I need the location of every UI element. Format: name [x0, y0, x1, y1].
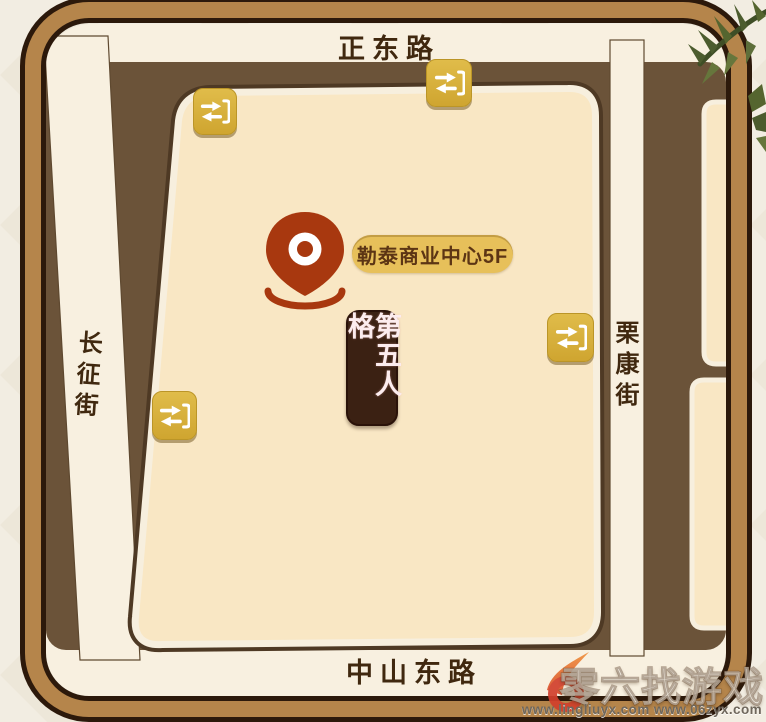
transfer-arrows-icon — [555, 324, 587, 351]
metro-station-icon — [193, 88, 237, 135]
road-label-zhengdong: 正东路 — [338, 27, 440, 66]
road-label-zhongshan-east: 中山东路 — [346, 651, 482, 690]
venue-banner: 第五人格 — [346, 310, 398, 426]
transfer-arrows-icon — [200, 99, 230, 124]
venue-banner-text: 第五人格 — [345, 312, 399, 424]
road-label-likang: 栗康街 — [607, 320, 642, 413]
metro-station-icon — [426, 59, 472, 107]
metro-station-icon — [547, 313, 594, 362]
transfer-arrows-icon — [159, 403, 190, 429]
metro-station-icon — [152, 391, 197, 440]
transfer-arrows-icon — [434, 70, 465, 96]
event-location-map: 正东路 中山东路 长征街 栗康街 — [0, 0, 766, 722]
watermark-urls-text: www.lingliuyx.com www.06zyx.com — [522, 702, 762, 717]
poi-label-pill: 勒泰商业中心5F — [352, 235, 513, 273]
road-label-changzheng: 长征街 — [65, 329, 106, 424]
